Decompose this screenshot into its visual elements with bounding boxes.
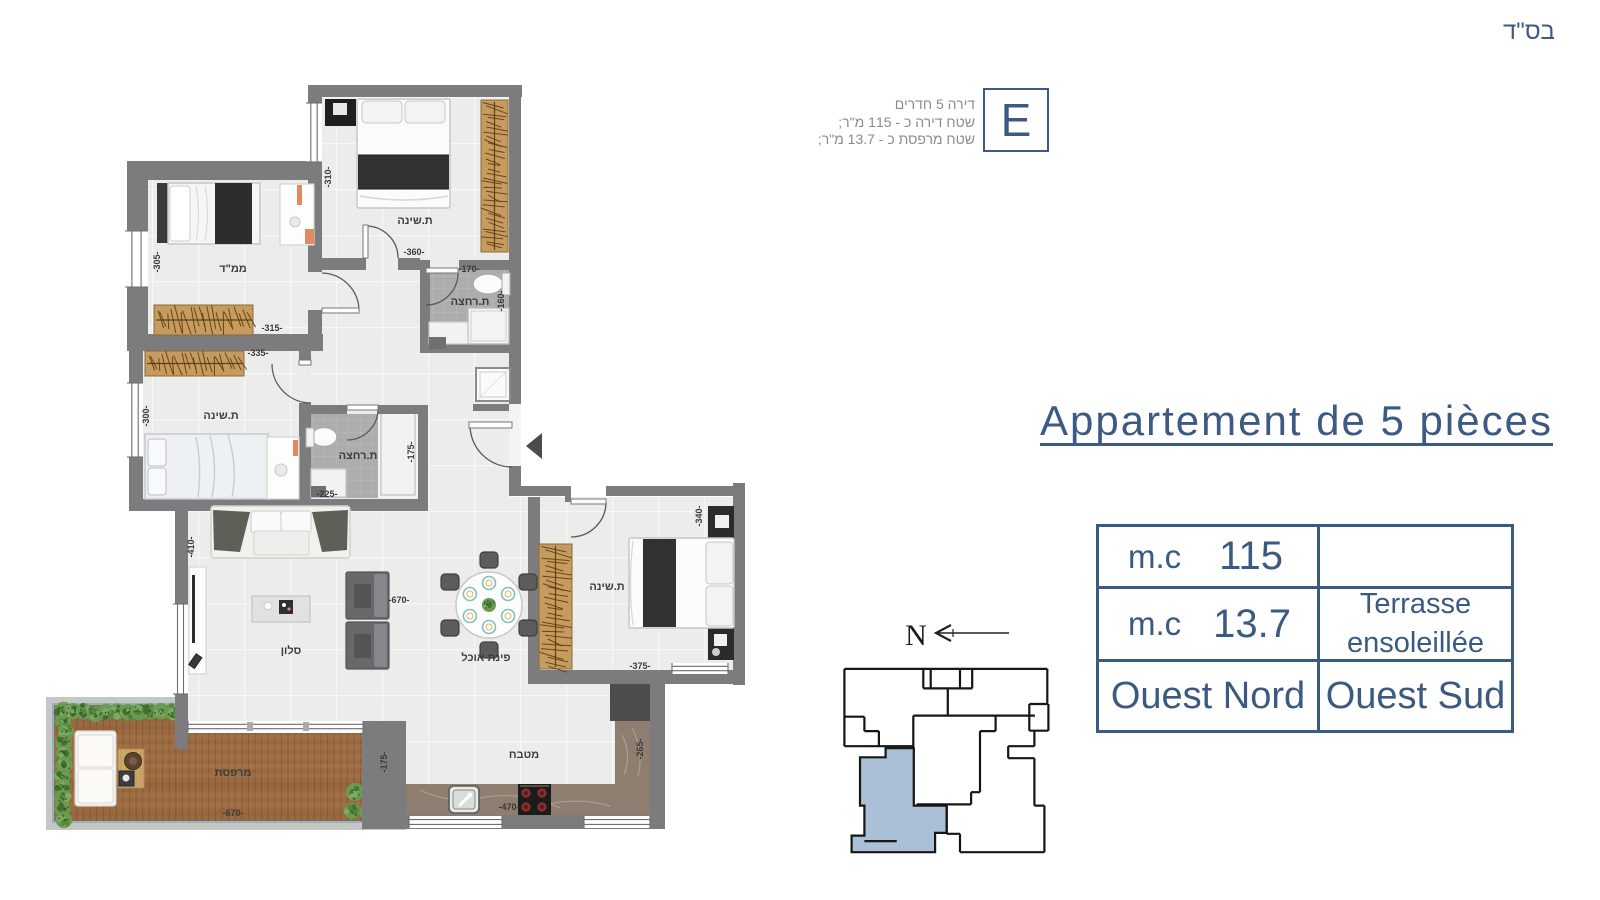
svg-text:-310-: -310- bbox=[323, 166, 333, 187]
svg-text:-375-: -375- bbox=[629, 661, 650, 671]
svg-text:ת.שינה: ת.שינה bbox=[589, 581, 624, 593]
svg-text:פינת אוכל: פינת אוכל bbox=[461, 651, 510, 664]
svg-text:ת.רחצה: ת.רחצה bbox=[451, 296, 490, 308]
svg-text:ת.שינה: ת.שינה bbox=[203, 410, 238, 422]
svg-text:ת.רחצה: ת.רחצה bbox=[339, 450, 378, 462]
svg-text:-160-: -160- bbox=[496, 290, 506, 311]
svg-text:-305-: -305- bbox=[152, 251, 162, 272]
svg-text:-225-: -225- bbox=[316, 489, 337, 499]
svg-text:-300-: -300- bbox=[141, 405, 151, 426]
svg-text:מרפסת: מרפסת bbox=[215, 767, 252, 779]
svg-text:מטבח: מטבח bbox=[509, 749, 539, 761]
svg-text:-335-: -335- bbox=[247, 348, 268, 358]
svg-text:-670-: -670- bbox=[388, 595, 409, 605]
svg-text:-340-: -340- bbox=[694, 505, 704, 526]
svg-text:N: N bbox=[905, 619, 927, 652]
svg-text:-670-: -670- bbox=[222, 808, 243, 818]
svg-text:-470-: -470- bbox=[498, 802, 519, 812]
svg-text:-265-: -265- bbox=[635, 738, 645, 759]
svg-text:-410-: -410- bbox=[186, 536, 196, 557]
svg-text:סלון: סלון bbox=[281, 644, 302, 657]
svg-text:-315-: -315- bbox=[261, 323, 282, 333]
svg-text:-360-: -360- bbox=[403, 247, 424, 257]
svg-text:-175-: -175- bbox=[406, 441, 416, 462]
svg-text:ת.שינה: ת.שינה bbox=[397, 215, 432, 227]
svg-text:ממ"ד: ממ"ד bbox=[219, 263, 247, 275]
svg-text:-170-: -170- bbox=[458, 264, 479, 274]
svg-text:-175-: -175- bbox=[379, 751, 389, 772]
